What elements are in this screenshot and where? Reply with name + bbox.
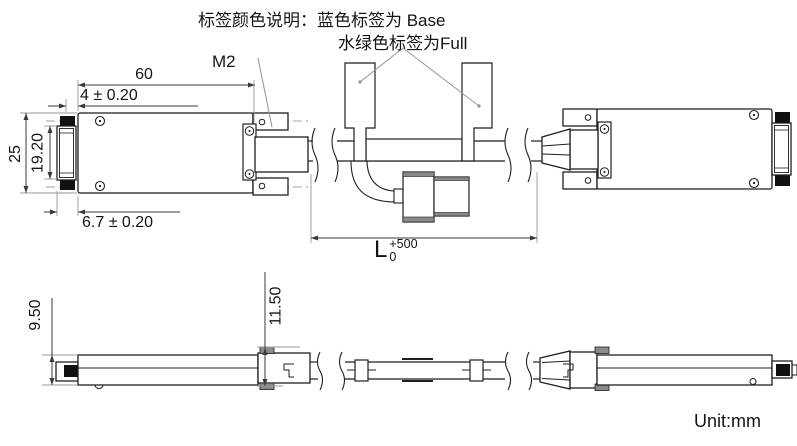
leader-dot	[358, 80, 361, 83]
dim-offset-bottom: 6.7 ± 0.20	[82, 214, 153, 232]
dsub-tab-top	[60, 116, 75, 127]
latch-tab	[260, 347, 274, 354]
right-device-side-view	[540, 347, 797, 391]
dim-body-height: 25	[7, 137, 25, 171]
end-stub	[792, 365, 797, 375]
color-note-line2: 水绿色标签为Full	[338, 29, 467, 54]
strain-relief	[542, 129, 570, 170]
branch-stub	[394, 189, 403, 203]
cable-connector-bar	[598, 122, 611, 178]
dsub-tab-bottom	[775, 175, 790, 186]
device-body	[78, 113, 253, 193]
leader-dot	[477, 104, 480, 107]
cable-backshell	[570, 130, 598, 169]
cable-junction	[366, 139, 462, 161]
mounting-post-top	[563, 109, 597, 126]
cable-length-base: L	[374, 237, 387, 263]
color-note-line1: 标签颜色说明：蓝色标签为 Base	[198, 6, 445, 31]
dsub-tab-top	[775, 112, 790, 123]
branch-connector	[403, 172, 469, 222]
left-device-side-view	[56, 347, 310, 390]
strain-relief-side	[540, 351, 570, 389]
cable-length-tolerance: +500 0	[389, 238, 417, 264]
unit-label: Unit:mm	[694, 411, 761, 432]
cable-connector-side	[570, 352, 597, 388]
device-body	[597, 109, 772, 189]
cable-length-lower-tol: 0	[389, 251, 417, 264]
dim-body-width: 60	[129, 66, 159, 84]
dim-connector-height: 19.20	[30, 131, 48, 176]
dim-cable-length: L +500 0	[374, 237, 418, 264]
cable-backshell	[255, 137, 308, 172]
device-body-side	[597, 355, 772, 385]
mounting-post-bottom	[253, 178, 288, 195]
branch-cable	[351, 160, 396, 202]
left-device-top-view	[57, 113, 308, 195]
thread-callout-label: M2	[212, 52, 236, 72]
dim-side-body-height: 9.50	[27, 295, 45, 335]
label-clamps	[347, 360, 491, 381]
device-body-side	[78, 355, 258, 385]
latch-tab	[595, 347, 609, 354]
bottom-view	[56, 347, 797, 391]
dim-offset-top: 4 ± 0.20	[80, 87, 138, 105]
cable-connector-bar	[243, 124, 256, 180]
dim-side-connector-height: 11.50	[268, 284, 286, 329]
right-device-top-view	[542, 109, 791, 189]
top-view	[46, 63, 791, 222]
technical-drawing-page: 标签颜色说明：蓝色标签为 Base 水绿色标签为Full M2 60 4 ± 0…	[0, 0, 797, 446]
label-flag-full	[462, 63, 492, 161]
mounting-post-bottom	[563, 172, 597, 189]
break-marks	[318, 352, 532, 390]
cable-side-view	[310, 352, 570, 390]
cable-top-view	[308, 63, 542, 222]
